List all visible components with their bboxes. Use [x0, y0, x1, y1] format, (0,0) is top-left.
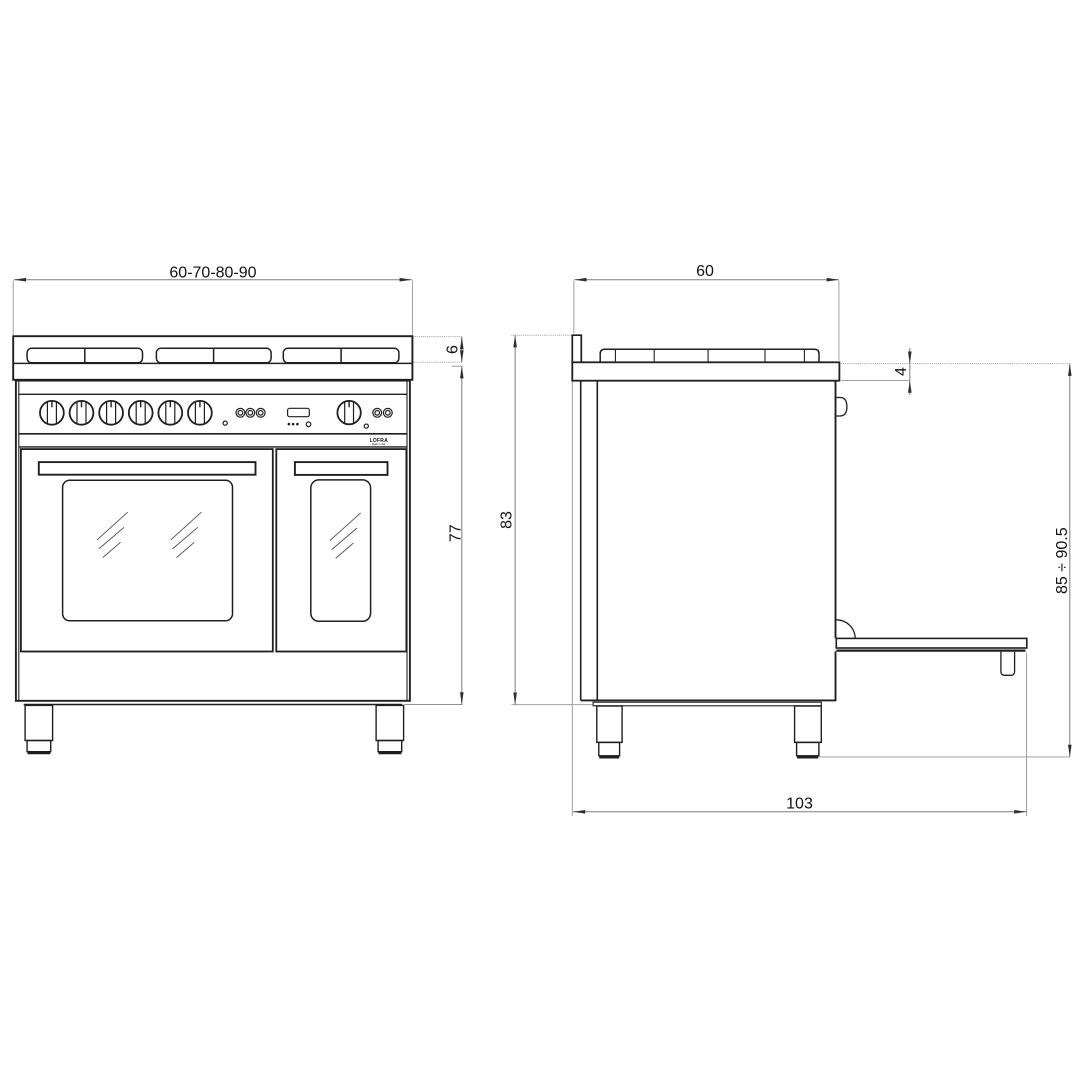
svg-text:85 ÷ 90.5: 85 ÷ 90.5: [1054, 527, 1071, 594]
svg-text:Made in Italy: Made in Italy: [372, 443, 386, 446]
svg-text:103: 103: [786, 795, 813, 812]
svg-text:4: 4: [893, 367, 910, 376]
svg-text:60-70-80-90: 60-70-80-90: [169, 264, 256, 281]
svg-text:6: 6: [445, 345, 462, 354]
svg-text:83: 83: [498, 511, 515, 529]
svg-text:60: 60: [696, 263, 714, 280]
svg-text:77: 77: [447, 524, 464, 542]
